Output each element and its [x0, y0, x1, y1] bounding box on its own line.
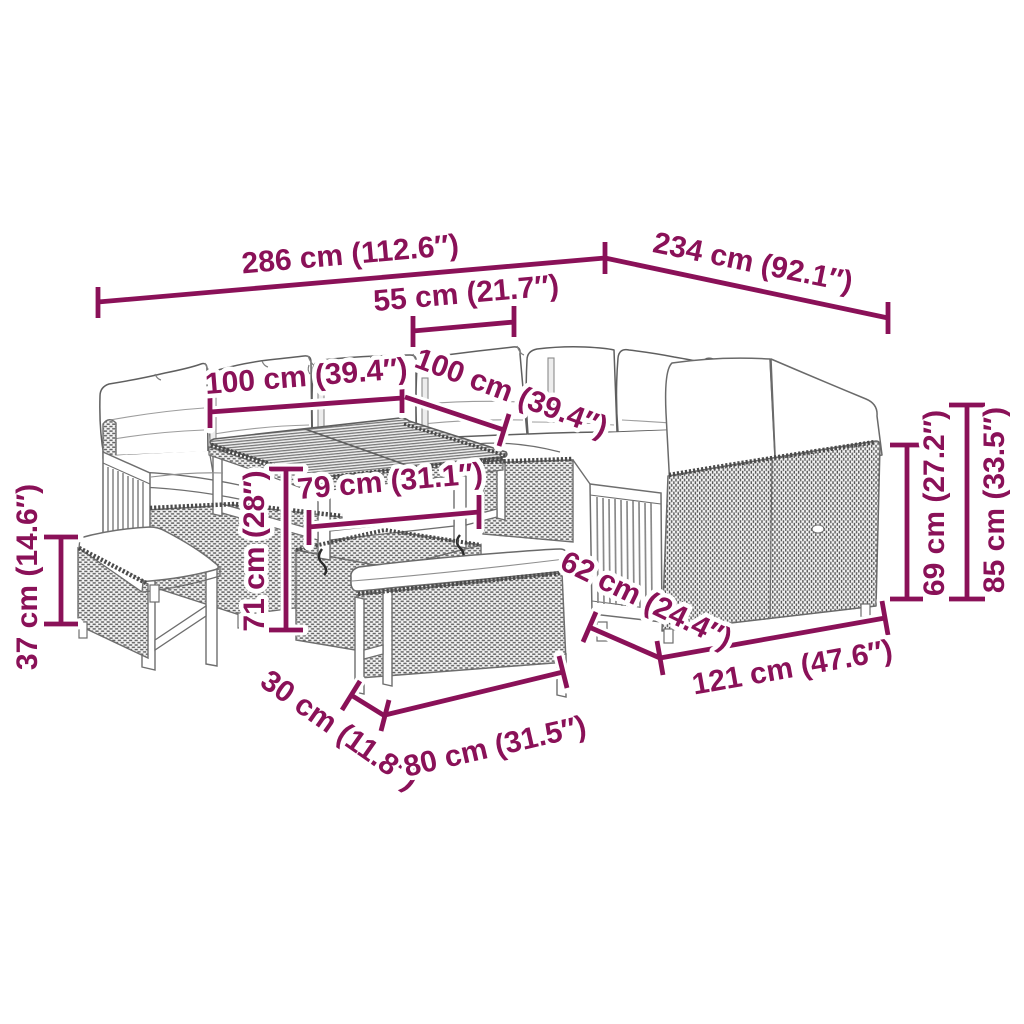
- svg-text:69 cm (27.2″): 69 cm (27.2″): [918, 410, 951, 596]
- svg-text:71 cm (28″): 71 cm (28″): [238, 470, 271, 631]
- svg-text:85 cm (33.5″): 85 cm (33.5″): [978, 407, 1011, 593]
- svg-text:37 cm (14.6″): 37 cm (14.6″): [11, 484, 44, 670]
